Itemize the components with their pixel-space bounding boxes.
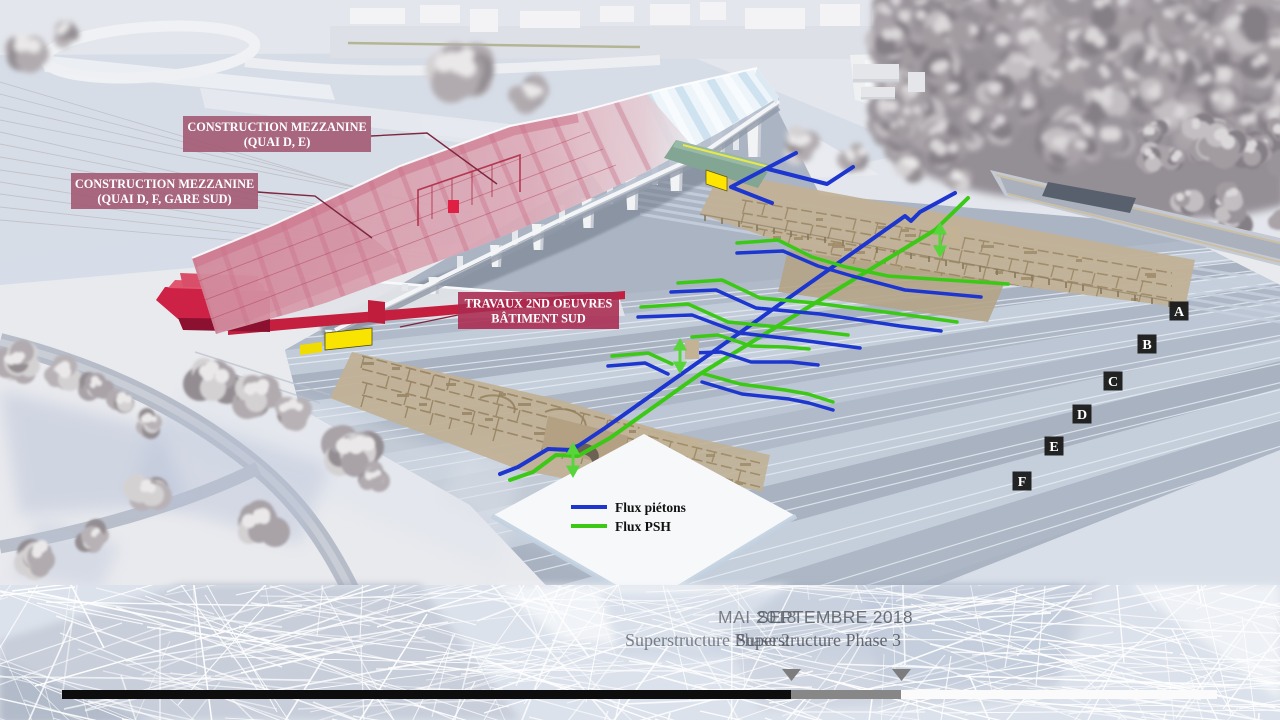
svg-text:BÂTIMENT SUD: BÂTIMENT SUD — [491, 312, 586, 326]
svg-text:(QUAI D, F, GARE SUD): (QUAI D, F, GARE SUD) — [97, 192, 231, 206]
svg-text:B: B — [1142, 338, 1151, 353]
svg-text:D: D — [1077, 408, 1087, 423]
svg-text:TRAVAUX 2ND OEUVRES: TRAVAUX 2ND OEUVRES — [465, 296, 613, 310]
svg-text:Superstructure Phase 3: Superstructure Phase 3 — [736, 630, 901, 650]
svg-text:Flux PSH: Flux PSH — [615, 519, 671, 534]
svg-text:A: A — [1174, 305, 1185, 320]
svg-text:F: F — [1018, 475, 1027, 490]
svg-text:SEPTEMBRE 2018: SEPTEMBRE 2018 — [757, 607, 913, 627]
svg-text:E: E — [1049, 440, 1058, 455]
svg-text:C: C — [1108, 375, 1118, 390]
svg-text:(QUAI D, E): (QUAI D, E) — [244, 135, 311, 149]
svg-text:CONSTRUCTION MEZZANINE: CONSTRUCTION MEZZANINE — [187, 120, 366, 134]
svg-text:Flux piétons: Flux piétons — [615, 500, 686, 515]
svg-text:CONSTRUCTION MEZZANINE: CONSTRUCTION MEZZANINE — [75, 177, 254, 191]
